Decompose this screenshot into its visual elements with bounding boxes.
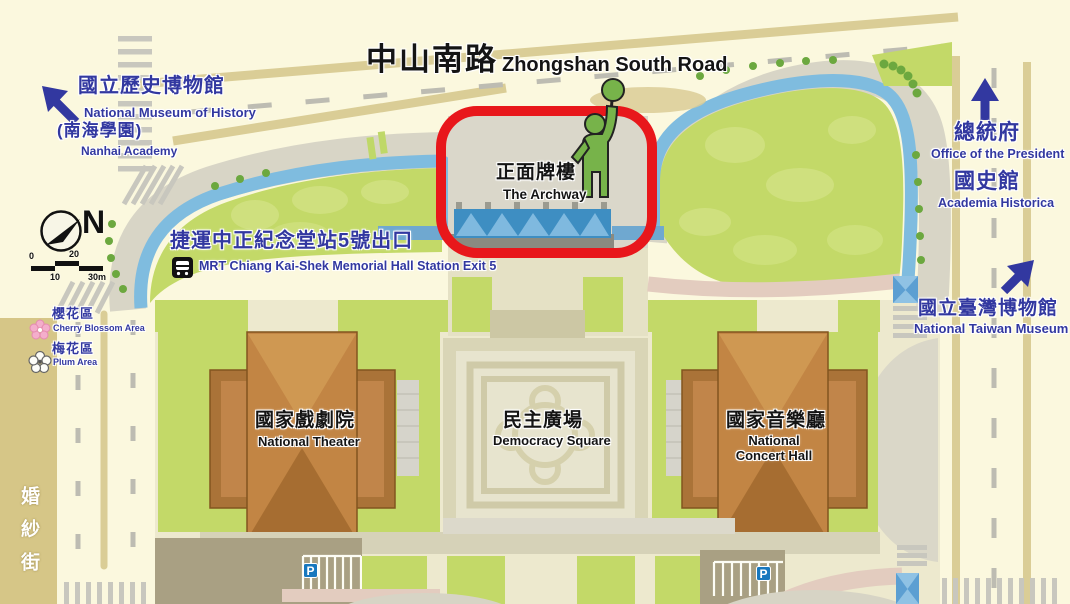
national-theater-label-en: National Theater bbox=[258, 435, 360, 449]
president-office-label-zh: 總統府 bbox=[954, 122, 1020, 144]
national-concert-hall-label-zh: 國家音樂廳 bbox=[726, 411, 826, 431]
nanhai-academy-label-zh: (南海學園) bbox=[57, 122, 142, 140]
crosswalk-small-right bbox=[897, 545, 927, 566]
taiwan-museum-label-en: National Taiwan Museum bbox=[914, 322, 1068, 336]
taiwan-museum-label-zh: 國立臺灣博物館 bbox=[918, 299, 1058, 319]
scale-tick-20: 20 bbox=[69, 249, 79, 259]
national-concert-hall-label-en: National Concert Hall bbox=[728, 434, 820, 463]
parking-icon-left: P bbox=[303, 563, 318, 578]
scale-tick-30m: 30m bbox=[88, 272, 106, 282]
plum-area-label-en: Plum Area bbox=[53, 358, 97, 367]
national-theater-label-zh: 國家戲劇院 bbox=[255, 411, 355, 431]
cherry-blossom-label-zh: 櫻花區 bbox=[52, 307, 94, 321]
moat-corner-northeast bbox=[893, 276, 918, 303]
zhongshan-road-label-en: Zhongshan South Road bbox=[502, 55, 728, 76]
parking-icon-right: P bbox=[756, 566, 771, 581]
compass-icon bbox=[42, 212, 81, 251]
history-museum-label-en: National Museum of History bbox=[84, 106, 256, 120]
academia-historica-label-en: Academia Historica bbox=[938, 197, 1054, 210]
cherry-blossom-label-en: Cherry Blossom Area bbox=[53, 324, 145, 333]
south-gate-step bbox=[443, 518, 735, 534]
mrt-icon bbox=[172, 257, 193, 278]
democracy-square-label-zh: 民主廣場 bbox=[503, 411, 583, 431]
mrt-exit-label-zh: 捷運中正紀念堂站5號出口 bbox=[170, 231, 413, 252]
scale-tick-10: 10 bbox=[50, 272, 60, 282]
mrt-exit-label-en: MRT Chiang Kai-Shek Memorial Hall Statio… bbox=[199, 260, 496, 273]
wedding-street-label: 婚紗街 bbox=[18, 486, 38, 585]
democracy-square-label-en: Democracy Square bbox=[493, 434, 611, 448]
zhongshan-road-label-zh: 中山南路 bbox=[366, 44, 498, 77]
compass-north-label: N bbox=[82, 204, 105, 241]
president-office-label-en: Office of the President bbox=[931, 148, 1064, 161]
plum-area-label-zh: 梅花區 bbox=[52, 342, 94, 356]
history-museum-label-zh: 國立歷史博物館 bbox=[78, 76, 225, 97]
moat-corner-southeast bbox=[896, 573, 919, 604]
cks-memorial-area-map: 國立歷史博物館 National Museum of History (南海學園… bbox=[0, 0, 1070, 604]
academia-historica-label-zh: 國史館 bbox=[954, 171, 1020, 193]
scale-tick-0: 0 bbox=[29, 251, 34, 261]
archway-label-en: The Archway bbox=[503, 188, 587, 202]
nanhai-academy-label-en: Nanhai Academy bbox=[81, 145, 177, 158]
archway-label-zh: 正面牌樓 bbox=[496, 163, 576, 183]
